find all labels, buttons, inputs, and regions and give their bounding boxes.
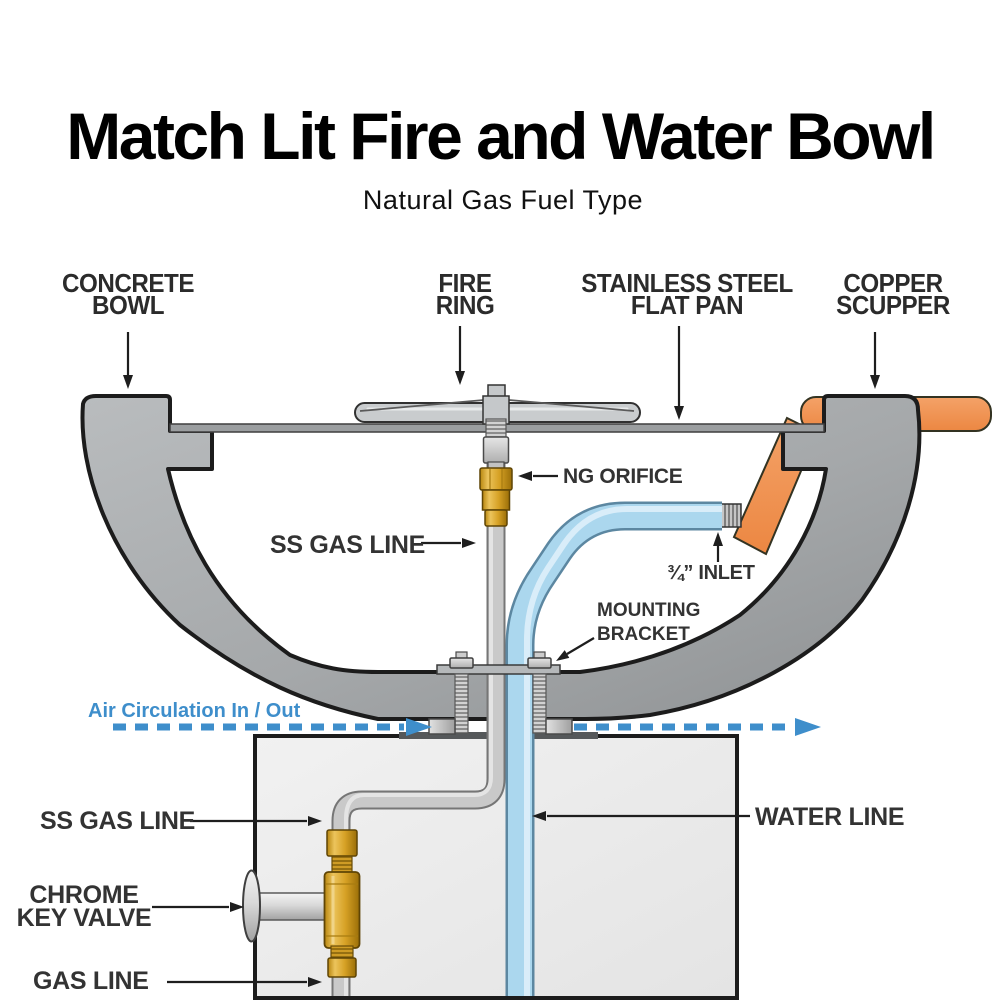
callout-copper-scupper-line2: SCUPPER	[836, 294, 950, 316]
page-subtitle: Natural Gas Fuel Type	[363, 186, 643, 214]
callout-flat-pan: STAINLESS STEEL FLAT PAN	[581, 272, 793, 316]
callout-chrome-key-valve: CHROME KEY VALVE	[17, 884, 152, 930]
fire-ring-shape	[355, 385, 640, 424]
page-title: Match Lit Fire and Water Bowl	[66, 110, 933, 162]
callout-ss-gas-line-upper: SS GAS LINE	[270, 531, 425, 560]
callout-gas-line: GAS LINE	[33, 967, 149, 996]
water-inlet-threads	[720, 504, 741, 527]
callout-concrete-bowl: CONCRETE BOWL	[62, 272, 194, 316]
callout-mounting-bracket: MOUNTING BRACKET	[597, 599, 700, 647]
fire-water-bowl-diagram: Match Lit Fire and Water Bowl Natural Ga…	[0, 0, 1000, 1000]
callout-ng-orifice: NG ORIFICE	[563, 465, 683, 489]
callout-copper-scupper: COPPER SCUPPER	[836, 272, 950, 316]
callout-chrome-key-valve-line2: KEY VALVE	[17, 907, 152, 930]
callout-fire-ring: FIRE RING	[436, 272, 495, 316]
callout-air-circulation: Air Circulation In / Out	[88, 700, 300, 723]
callout-water-line: WATER LINE	[755, 803, 904, 832]
callout-mounting-bracket-line1: MOUNTING	[597, 599, 700, 623]
callout-ss-gas-line-lower: SS GAS LINE	[40, 807, 195, 836]
callout-inlet: ¾” INLET	[667, 562, 755, 585]
callout-mounting-bracket-line2: BRACKET	[597, 623, 700, 647]
callout-fire-ring-line2: RING	[436, 294, 495, 316]
ng-orifice-shape	[480, 419, 512, 526]
